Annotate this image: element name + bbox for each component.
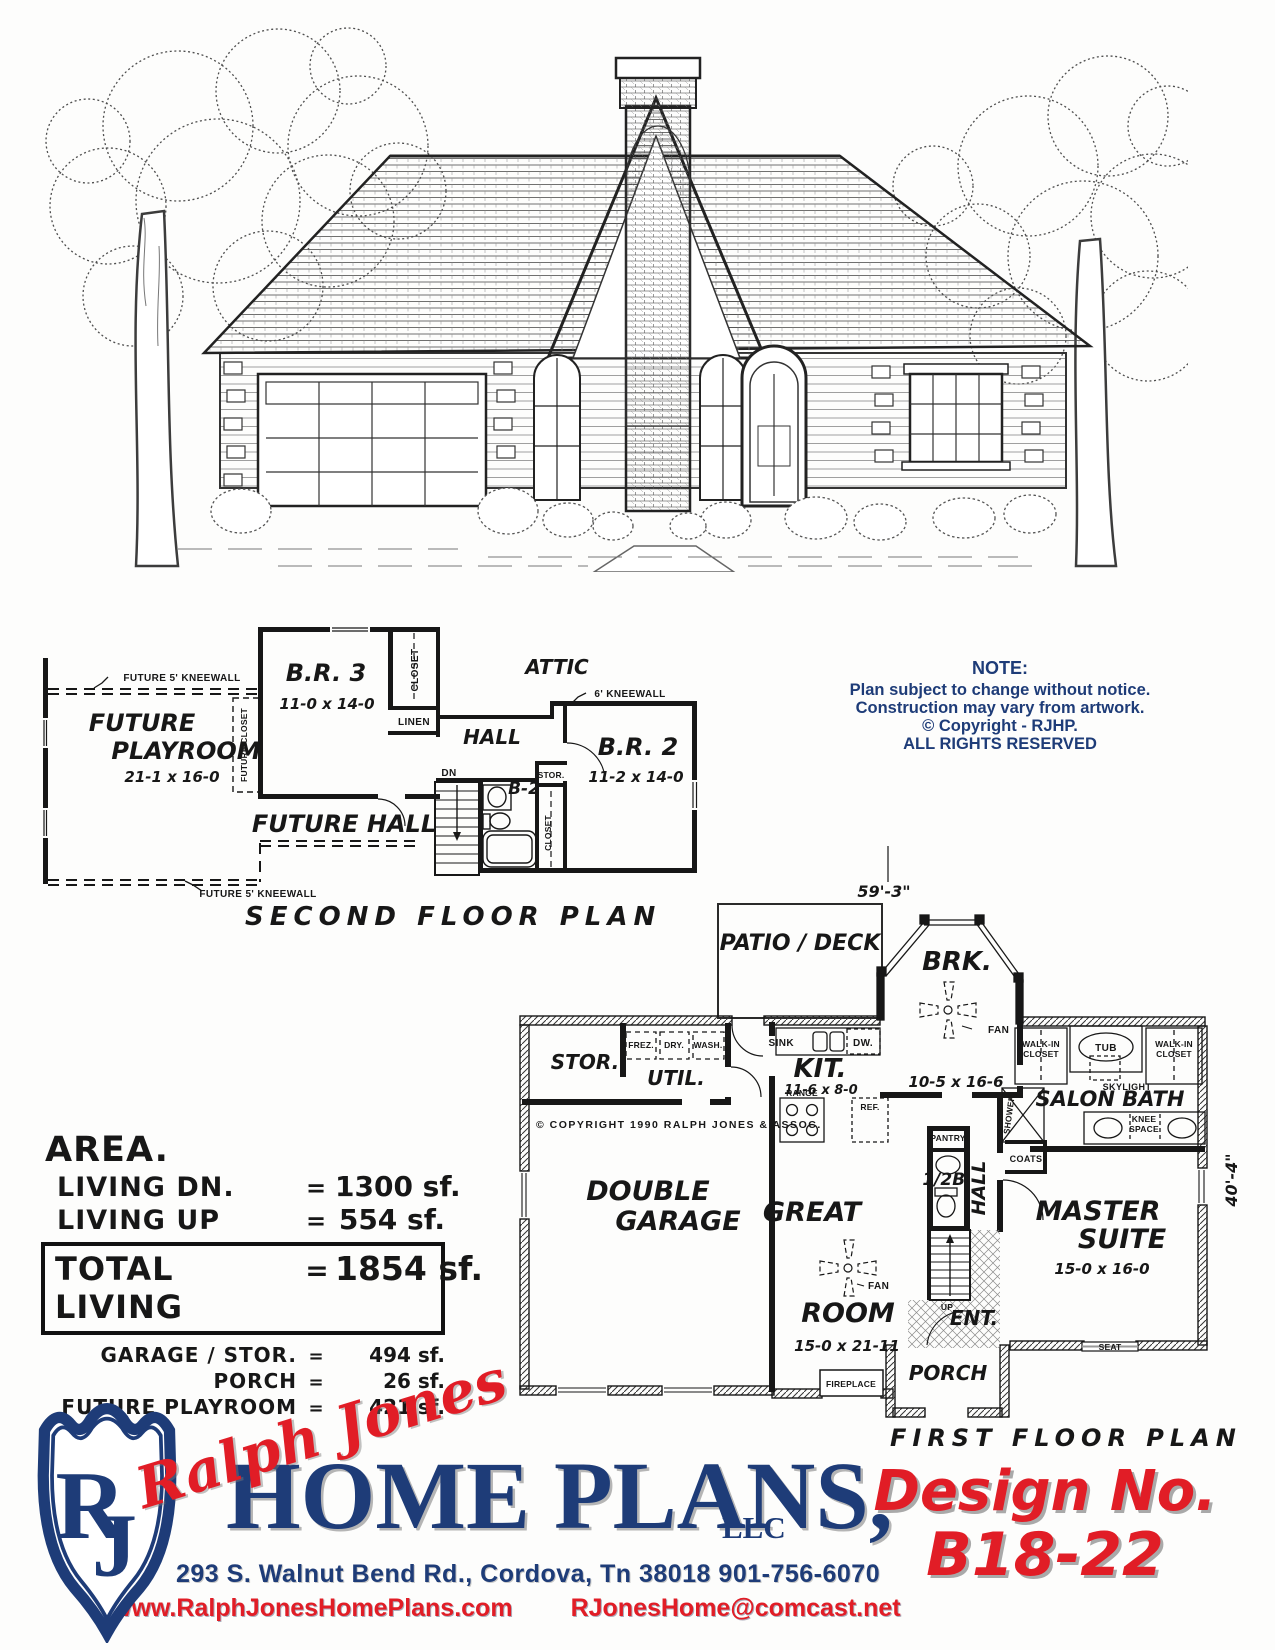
label-linen: LINEN xyxy=(398,717,430,728)
label-range: RANGE xyxy=(786,1088,818,1098)
label-kneewall-top: FUTURE 5' KNEEWALL xyxy=(123,673,240,684)
first-floor-plan: 59'-3" 40'-4" PATIO / DECK BRK. FAN 10-5… xyxy=(480,840,1270,1425)
label-br2: B.R. 2 xyxy=(598,733,679,761)
label-kneewall-bottom: FUTURE 5' KNEEWALL xyxy=(199,889,316,900)
area-row-value: 494 sf. xyxy=(335,1343,445,1367)
monogram-j: J xyxy=(92,1497,137,1596)
note-line: Plan subject to change without notice. xyxy=(820,681,1180,699)
stairs-down xyxy=(435,782,479,875)
label-ent: ENT. xyxy=(950,1306,998,1330)
area-table: AREA. LIVING DN. = 1300 sf. LIVING UP = … xyxy=(45,1130,445,1421)
label-walkin2b: CLOSET xyxy=(1156,1049,1192,1059)
label-util: UTIL. xyxy=(647,1066,705,1090)
area-sub-row: GARAGE / STOR. = 494 sf. xyxy=(45,1343,445,1367)
label-seat: SEAT xyxy=(1099,1342,1122,1352)
arched-window-right xyxy=(700,355,746,500)
tree-right-trunk xyxy=(1075,239,1116,566)
web-email-line: www.RalphJonesHomePlans.comRJonesHome@co… xyxy=(112,1594,901,1623)
equals-sign: = xyxy=(299,1254,335,1287)
label-6-kneewall: 6' KNEEWALL xyxy=(594,689,665,700)
label-master: MASTER xyxy=(1036,1196,1161,1227)
company-address: 293 S. Walnut Bend Rd., Cordova, Tn 3801… xyxy=(176,1560,880,1589)
note-block: NOTE: Plan subject to change without not… xyxy=(820,658,1180,753)
label-patio: PATIO / DECK xyxy=(720,931,883,956)
label-future-closet: FUTURE CLOSET xyxy=(239,707,249,782)
area-row: LIVING DN. = 1300 sf. xyxy=(45,1170,445,1203)
label-brk: BRK. xyxy=(922,947,992,977)
label-stor: STOR. xyxy=(551,1050,619,1074)
area-row-label: GARAGE / STOR. xyxy=(45,1343,297,1367)
label-kit: KIT. xyxy=(793,1054,846,1084)
company-suffix: LLC xyxy=(722,1510,786,1546)
label-b2: B-2 xyxy=(508,779,540,799)
area-row-label: LIVING DN. xyxy=(45,1172,297,1203)
label-tub: TUB xyxy=(1095,1043,1117,1054)
label-walkin1: WALK-IN xyxy=(1022,1039,1060,1049)
label-walkin1b: CLOSET xyxy=(1023,1049,1059,1059)
label-dw: DW. xyxy=(853,1038,873,1049)
house-elevation-drawing xyxy=(28,6,1188,572)
area-row-value: 1300 sf. xyxy=(335,1170,461,1203)
label-frez: FREZ. xyxy=(628,1040,654,1050)
label-sink: SINK xyxy=(769,1038,795,1049)
label-fireplace: FIREPLACE xyxy=(826,1379,876,1389)
note-line: Construction may vary from artwork. xyxy=(820,699,1180,717)
multipane-window xyxy=(902,364,1010,470)
note-line: ALL RIGHTS RESERVED xyxy=(820,735,1180,753)
label-coats: COATS xyxy=(1010,1154,1043,1164)
label-playroom-dim: 21-1 x 16-0 xyxy=(124,768,219,786)
rj-shield-logo: R J xyxy=(32,1398,182,1643)
label-future: FUTURE xyxy=(89,709,196,737)
label-fan: FAN xyxy=(988,1025,1009,1036)
label-brk-dim: 10-5 x 16-6 xyxy=(908,1073,1003,1091)
label-stor: STOR. xyxy=(538,770,565,780)
label-half-bath: 1/2B. xyxy=(922,1170,971,1190)
plan-sheet: FUTURE 5' KNEEWALL FUTURE PLAYROOM 21-1 … xyxy=(0,0,1275,1650)
equals-sign: = xyxy=(297,1174,335,1202)
label-walkin2: WALK-IN xyxy=(1155,1039,1193,1049)
label-br2-dim: 11-2 x 14-0 xyxy=(588,768,683,786)
stairs-up xyxy=(930,1230,970,1300)
label-knee: KNEE xyxy=(1132,1114,1157,1124)
total-living-box: TOTAL LIVING = 1854 sf. xyxy=(41,1242,445,1335)
label-br3: B.R. 3 xyxy=(286,659,367,687)
label-dim-height: 40'-4" xyxy=(1222,1153,1241,1207)
design-number: B18-22 xyxy=(855,1522,1235,1588)
note-heading: NOTE: xyxy=(820,658,1180,679)
label-porch: PORCH xyxy=(909,1361,988,1385)
patio-outline xyxy=(718,904,882,1018)
label-future-hall: FUTURE HALL xyxy=(252,810,436,838)
design-number-block: Design No. B18-22 xyxy=(855,1462,1235,1588)
label-ref: REF. xyxy=(860,1102,879,1112)
first-floor-title: FIRST FLOOR PLAN xyxy=(890,1424,1190,1452)
label-suite: SUITE xyxy=(1078,1224,1167,1255)
label-hall: HALL xyxy=(968,1161,990,1216)
label-fan2: FAN xyxy=(868,1281,889,1292)
house-body xyxy=(178,58,1090,572)
entry-floor xyxy=(970,1230,1000,1348)
label-dim-width: 59'-3" xyxy=(857,882,910,901)
label-attic: ATTIC xyxy=(523,655,589,679)
arched-window-left xyxy=(534,355,580,500)
label-salon-bath: SALON BATH xyxy=(1036,1087,1185,1111)
equals-sign: = xyxy=(297,1372,335,1393)
label-hall: HALL xyxy=(463,725,521,749)
area-row-value: 554 sf. xyxy=(335,1203,445,1236)
tree-left-trunk xyxy=(136,211,178,566)
company-email: RJonesHome@comcast.net xyxy=(571,1594,901,1622)
label-master-dim: 15-0 x 16-0 xyxy=(1054,1260,1149,1278)
label-great-dim: 15-0 x 21-11 xyxy=(794,1337,900,1355)
note-line: © Copyright - RJHP. xyxy=(820,717,1180,735)
equals-sign: = xyxy=(297,1207,335,1235)
walkway xyxy=(594,546,734,572)
label-shower: SHOWER xyxy=(1001,1094,1016,1134)
label-room: ROOM xyxy=(801,1298,895,1329)
total-value: 1854 sf. xyxy=(335,1249,483,1288)
area-row-label: LIVING UP xyxy=(45,1205,297,1236)
label-dn: DN xyxy=(441,768,456,779)
area-row-label: PORCH xyxy=(45,1369,297,1393)
front-door xyxy=(742,346,806,506)
label-wash: WASH. xyxy=(694,1040,723,1050)
label-br3-dim: 11-0 x 14-0 xyxy=(279,695,374,713)
area-row: LIVING UP = 554 sf. xyxy=(45,1203,445,1236)
label-knee2: SPACE xyxy=(1129,1124,1159,1134)
total-label: TOTAL LIVING xyxy=(51,1250,299,1326)
label-copyright: © COPYRIGHT 1990 RALPH JONES & ASSOC. xyxy=(536,1119,822,1131)
label-closet: CLOSET xyxy=(410,649,421,692)
label-great: GREAT xyxy=(763,1197,864,1228)
label-pantry: PANTRY xyxy=(930,1133,965,1143)
equals-sign: = xyxy=(297,1346,335,1367)
label-garage2: GARAGE xyxy=(615,1206,741,1237)
label-dry: DRY. xyxy=(664,1040,684,1050)
label-garage1: DOUBLE xyxy=(586,1176,710,1207)
chimney xyxy=(626,106,690,511)
design-label: Design No. xyxy=(855,1462,1235,1522)
area-heading: AREA. xyxy=(45,1130,445,1170)
garage-door xyxy=(258,374,486,506)
